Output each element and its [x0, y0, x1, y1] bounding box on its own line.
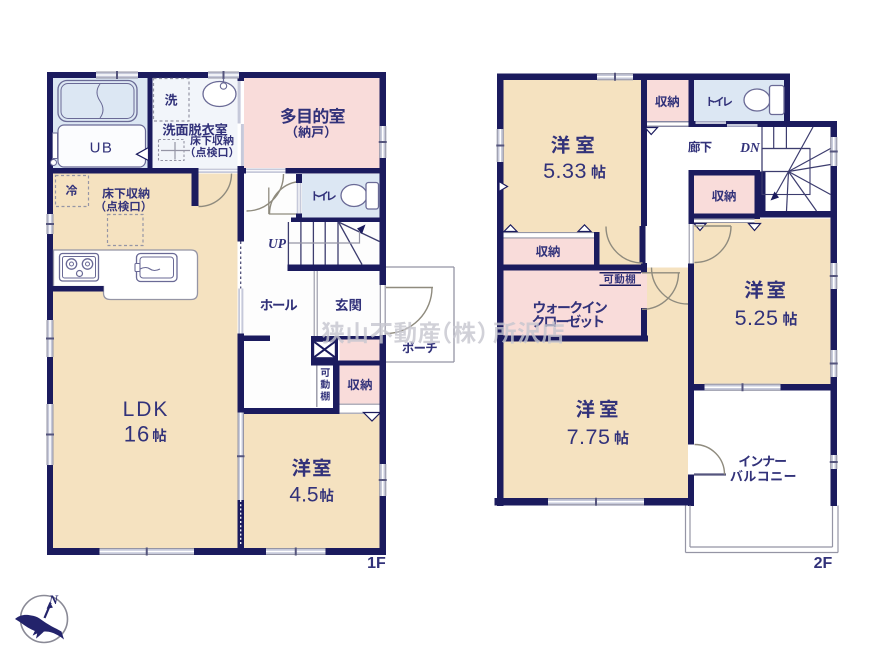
svg-text:4.5: 4.5: [289, 484, 318, 507]
svg-text:DN: DN: [739, 140, 761, 155]
svg-text:UP: UP: [268, 236, 287, 251]
svg-text:N: N: [48, 593, 59, 607]
svg-text:5.25: 5.25: [735, 306, 779, 330]
svg-text:16: 16: [124, 422, 150, 447]
svg-text:LDK: LDK: [123, 398, 170, 421]
svg-text:5.33: 5.33: [543, 159, 587, 183]
svg-text:UB: UB: [90, 140, 114, 157]
svg-text:7.75: 7.75: [567, 425, 611, 449]
svg-text:2F: 2F: [814, 555, 833, 572]
svg-text:1F: 1F: [367, 555, 386, 572]
